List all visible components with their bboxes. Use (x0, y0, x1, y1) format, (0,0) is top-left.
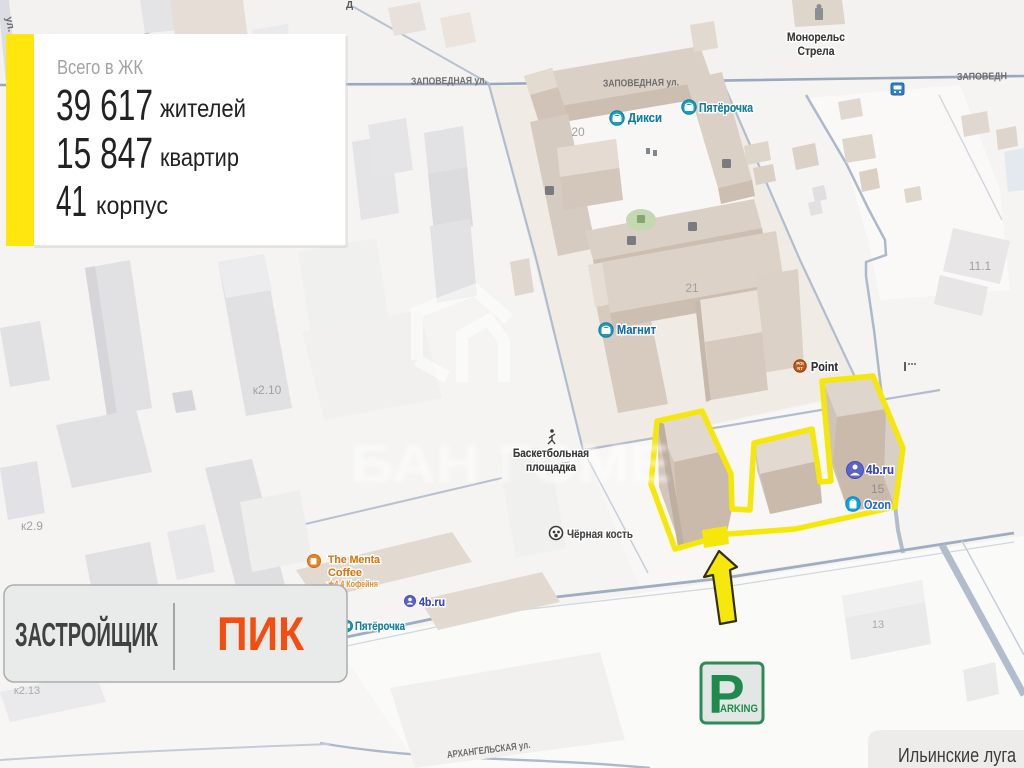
svg-text:Д: Д (346, 0, 353, 11)
svg-text:39 617: 39 617 (56, 81, 153, 130)
svg-text:Ильинские луга: Ильинские луга (898, 745, 1017, 767)
svg-text:Стрела: Стрела (798, 44, 835, 58)
svg-text:Point: Point (811, 359, 839, 374)
svg-text:The Menta: The Menta (328, 554, 381, 566)
svg-text:Пятёрочка: Пятёрочка (699, 100, 754, 115)
svg-text:Дикси: Дикси (628, 110, 662, 125)
svg-text:жителей: жителей (160, 95, 246, 123)
svg-text:Всего в ЖК: Всего в ЖК (57, 57, 143, 79)
svg-text:ПИК: ПИК (217, 607, 304, 660)
svg-text:Монорельс: Монорельс (787, 30, 845, 44)
svg-text:NT: NT (797, 366, 803, 371)
svg-text:ARKING: ARKING (720, 703, 758, 715)
svg-text:4b.ru: 4b.ru (419, 597, 445, 609)
svg-text:ЗАПОВЕДНАЯ ул.: ЗАПОВЕДНАЯ ул. (603, 77, 679, 89)
svg-text:Coffee: Coffee (328, 567, 362, 579)
svg-text:ЗАПОВЕДН: ЗАПОВЕДН (957, 71, 1007, 83)
svg-text:Ozon: Ozon (864, 497, 891, 512)
svg-text:ЗАПОВЕДНАЯ ул.: ЗАПОВЕДНАЯ ул. (411, 75, 487, 87)
svg-text:15 847: 15 847 (56, 129, 153, 178)
svg-text:Магнит: Магнит (617, 322, 656, 337)
svg-text:квартир: квартир (160, 144, 239, 172)
svg-text:15: 15 (871, 482, 885, 496)
svg-text:P: P (708, 663, 745, 725)
svg-text:БАН ГОМЕ: БАН ГОМЕ (350, 434, 670, 494)
svg-text:41: 41 (56, 177, 87, 226)
svg-text:ЗАСТРОЙЩИК: ЗАСТРОЙЩИК (15, 615, 159, 653)
svg-text:корпус: корпус (96, 192, 168, 220)
svg-text:4b.ru: 4b.ru (866, 463, 894, 477)
svg-text:Пятёрочка: Пятёрочка (355, 621, 405, 633)
svg-text:Чёрная кость: Чёрная кость (567, 527, 633, 541)
svg-text:Баскетбольная: Баскетбольная (513, 446, 589, 460)
svg-text:площадка: площадка (526, 460, 576, 474)
